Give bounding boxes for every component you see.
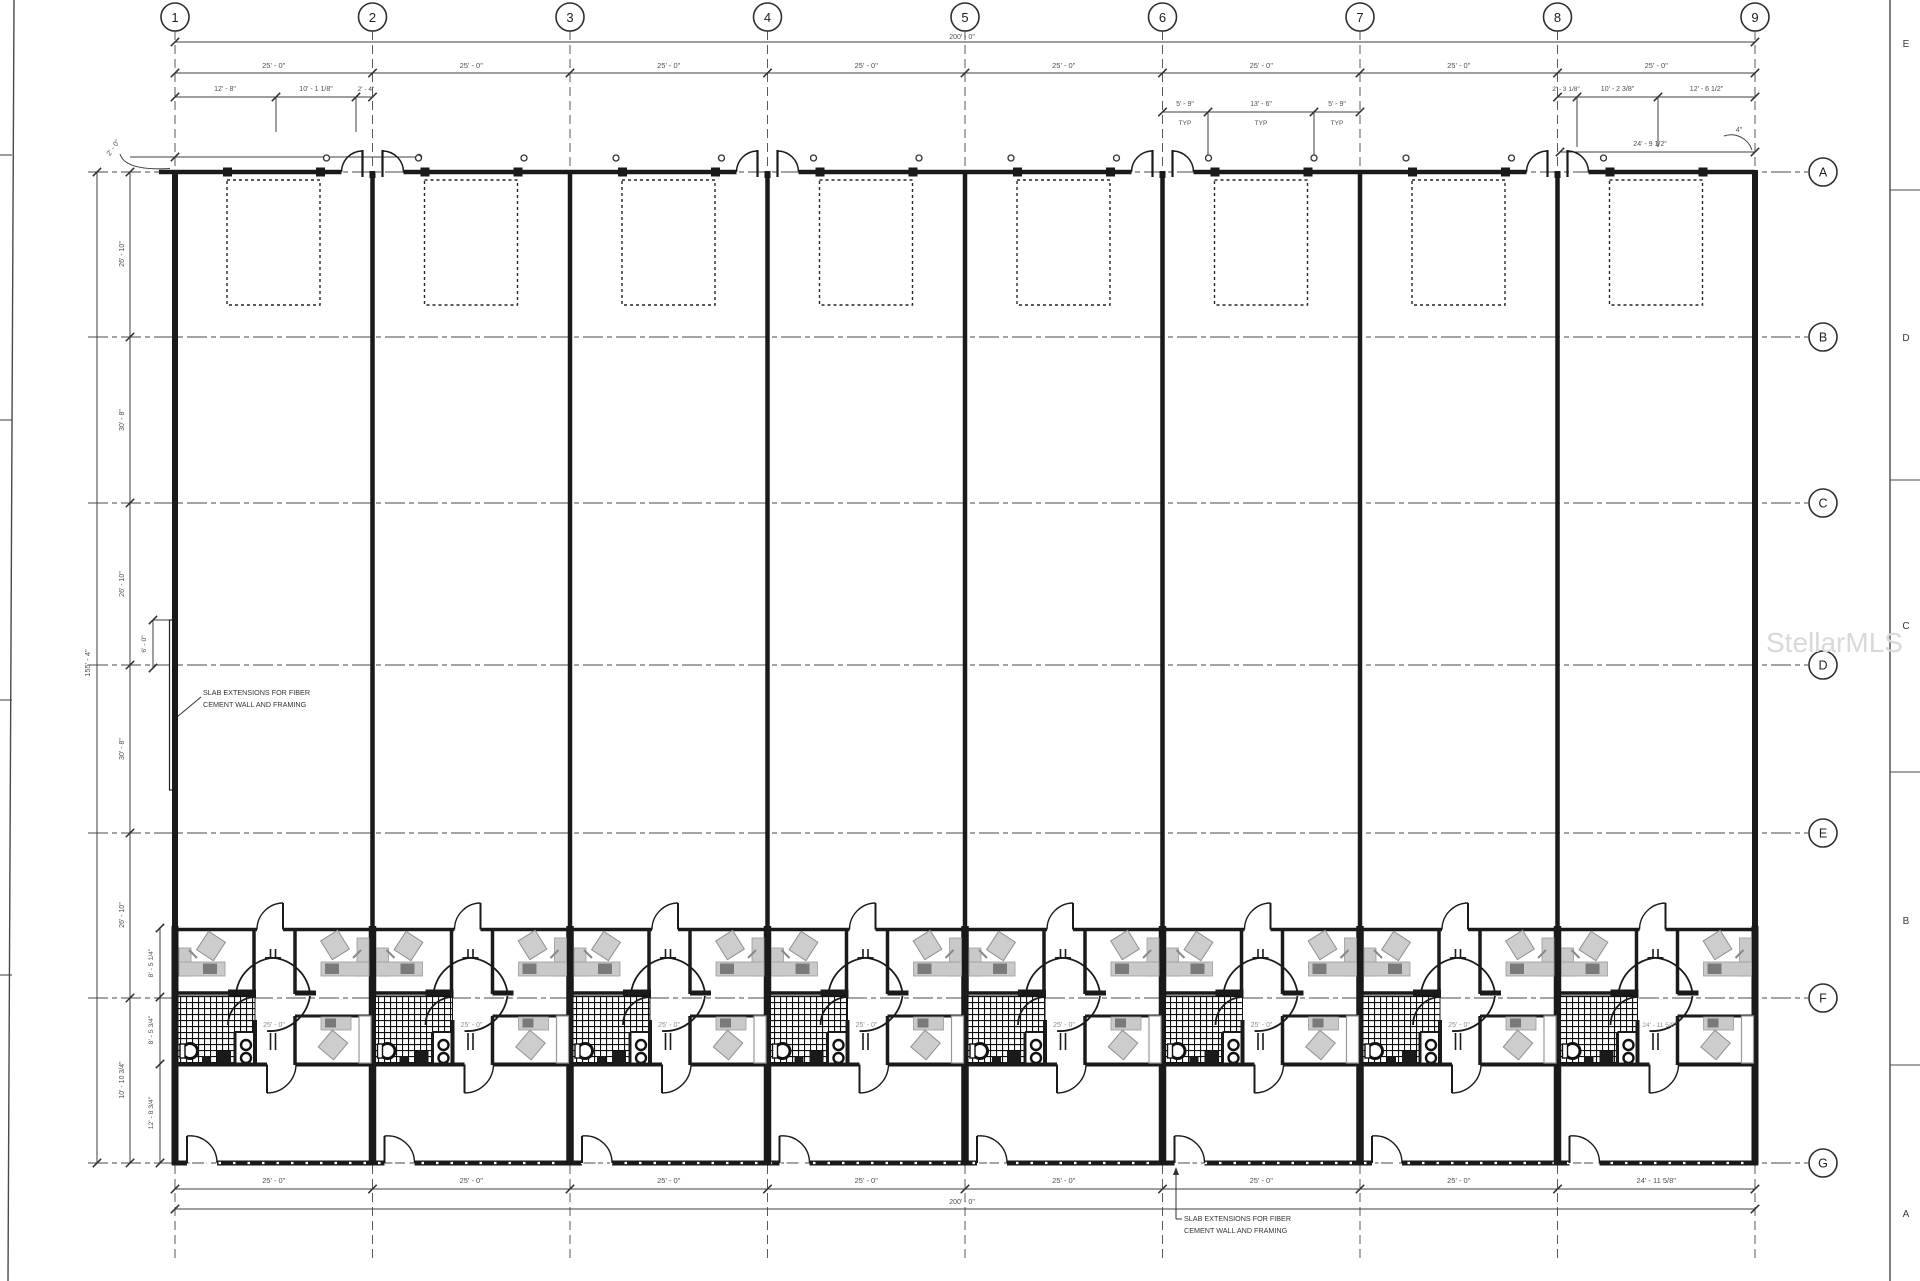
svg-text:E: E (1819, 827, 1827, 841)
svg-text:B: B (1903, 916, 1910, 927)
svg-text:25' - 0": 25' - 0" (1250, 61, 1274, 70)
svg-text:12' - 8": 12' - 8" (214, 86, 236, 93)
svg-text:25' - 0": 25' - 0" (1251, 1022, 1273, 1029)
svg-text:1: 1 (171, 10, 178, 25)
svg-text:25' - 0": 25' - 0" (1447, 61, 1471, 70)
svg-text:10' - 2 3/8": 10' - 2 3/8" (1601, 86, 1635, 93)
svg-text:6: 6 (1159, 10, 1166, 25)
svg-text:10' - 10 3/4": 10' - 10 3/4" (119, 1061, 126, 1099)
svg-text:TYP: TYP (1331, 120, 1344, 127)
svg-text:30' - 8": 30' - 8" (119, 409, 126, 431)
svg-text:25' - 0": 25' - 0" (855, 1176, 879, 1185)
svg-text:8: 8 (1554, 10, 1561, 25)
svg-text:4": 4" (1736, 127, 1743, 134)
svg-text:24' - 11 5/8": 24' - 11 5/8" (1642, 1022, 1677, 1029)
svg-text:A: A (1903, 1209, 1910, 1220)
svg-text:C: C (1902, 621, 1909, 632)
svg-text:TYP: TYP (1179, 120, 1192, 127)
svg-text:25' - 0": 25' - 0" (1053, 1022, 1075, 1029)
svg-text:25' - 0": 25' - 0" (1447, 1176, 1471, 1185)
svg-text:C: C (1818, 497, 1827, 511)
svg-text:B: B (1819, 331, 1827, 345)
svg-text:155' - 4": 155' - 4" (83, 649, 92, 677)
svg-text:5: 5 (961, 10, 968, 25)
svg-text:25' - 0": 25' - 0" (262, 61, 286, 70)
svg-text:200' - 0": 200' - 0" (949, 34, 975, 41)
svg-text:6' - 0": 6' - 0" (141, 635, 148, 653)
svg-text:26' - 10": 26' - 10" (119, 571, 126, 597)
svg-text:25' - 0": 25' - 0" (856, 1022, 878, 1029)
svg-text:25' - 0": 25' - 0" (460, 61, 484, 70)
svg-text:2' - 3 1/8": 2' - 3 1/8" (1552, 86, 1580, 93)
svg-text:StellarMLS: StellarMLS (1766, 627, 1903, 658)
svg-text:10' - 1 1/8": 10' - 1 1/8" (299, 86, 333, 93)
svg-text:25' - 0": 25' - 0" (1250, 1176, 1274, 1185)
svg-text:12' - 6 1/2": 12' - 6 1/2" (1690, 86, 1724, 93)
svg-text:24' - 11 5/8": 24' - 11 5/8" (1637, 1176, 1677, 1185)
svg-text:30' - 8": 30' - 8" (119, 738, 126, 760)
svg-text:25' - 0": 25' - 0" (657, 1176, 681, 1185)
svg-text:25' - 0": 25' - 0" (658, 1022, 680, 1029)
svg-text:26' - 10": 26' - 10" (119, 902, 126, 928)
svg-text:5' - 9": 5' - 9" (1328, 101, 1346, 108)
svg-text:SLAB EXTENSIONS FOR FIBER: SLAB EXTENSIONS FOR FIBER (1184, 1214, 1291, 1223)
svg-text:TYP: TYP (1255, 120, 1268, 127)
svg-text:25' - 0": 25' - 0" (262, 1176, 286, 1185)
svg-text:2: 2 (369, 10, 376, 25)
svg-text:CEMENT WALL AND FRAMING: CEMENT WALL AND FRAMING (203, 700, 307, 709)
svg-text:25' - 0": 25' - 0" (1645, 61, 1669, 70)
svg-text:25' - 0": 25' - 0" (263, 1022, 285, 1029)
svg-text:G: G (1818, 1157, 1828, 1171)
svg-text:F: F (1819, 992, 1827, 1006)
svg-text:8' - 5 1/4": 8' - 5 1/4" (148, 948, 155, 977)
svg-text:D: D (1902, 333, 1909, 344)
svg-text:A: A (1819, 166, 1828, 180)
svg-text:9: 9 (1751, 10, 1758, 25)
svg-text:200' - 0": 200' - 0" (949, 1199, 975, 1206)
svg-text:26' - 10": 26' - 10" (119, 241, 126, 267)
svg-text:5' - 9": 5' - 9" (1176, 101, 1194, 108)
svg-text:25' - 0": 25' - 0" (1448, 1022, 1470, 1029)
svg-text:13' - 6": 13' - 6" (1250, 101, 1272, 108)
svg-text:25' - 0": 25' - 0" (657, 61, 681, 70)
svg-text:7: 7 (1356, 10, 1363, 25)
svg-text:25' - 0": 25' - 0" (1052, 61, 1076, 70)
svg-text:3: 3 (566, 10, 573, 25)
svg-text:D: D (1818, 659, 1827, 673)
svg-text:24' - 9 1/2": 24' - 9 1/2" (1633, 141, 1667, 148)
svg-text:8' - 5 3/4": 8' - 5 3/4" (148, 1015, 155, 1044)
svg-text:SLAB EXTENSIONS FOR FIBER: SLAB EXTENSIONS FOR FIBER (203, 688, 310, 697)
svg-text:4: 4 (764, 10, 771, 25)
svg-text:CEMENT WALL AND FRAMING: CEMENT WALL AND FRAMING (1184, 1226, 1288, 1235)
svg-text:25' - 0": 25' - 0" (1052, 1176, 1076, 1185)
svg-text:2' - 4": 2' - 4" (358, 86, 375, 93)
svg-text:25' - 0": 25' - 0" (855, 61, 879, 70)
svg-text:E: E (1903, 39, 1910, 50)
svg-text:25' - 0": 25' - 0" (460, 1176, 484, 1185)
svg-text:12' - 8 3/4": 12' - 8 3/4" (148, 1096, 155, 1129)
svg-text:25' - 0": 25' - 0" (461, 1022, 483, 1029)
